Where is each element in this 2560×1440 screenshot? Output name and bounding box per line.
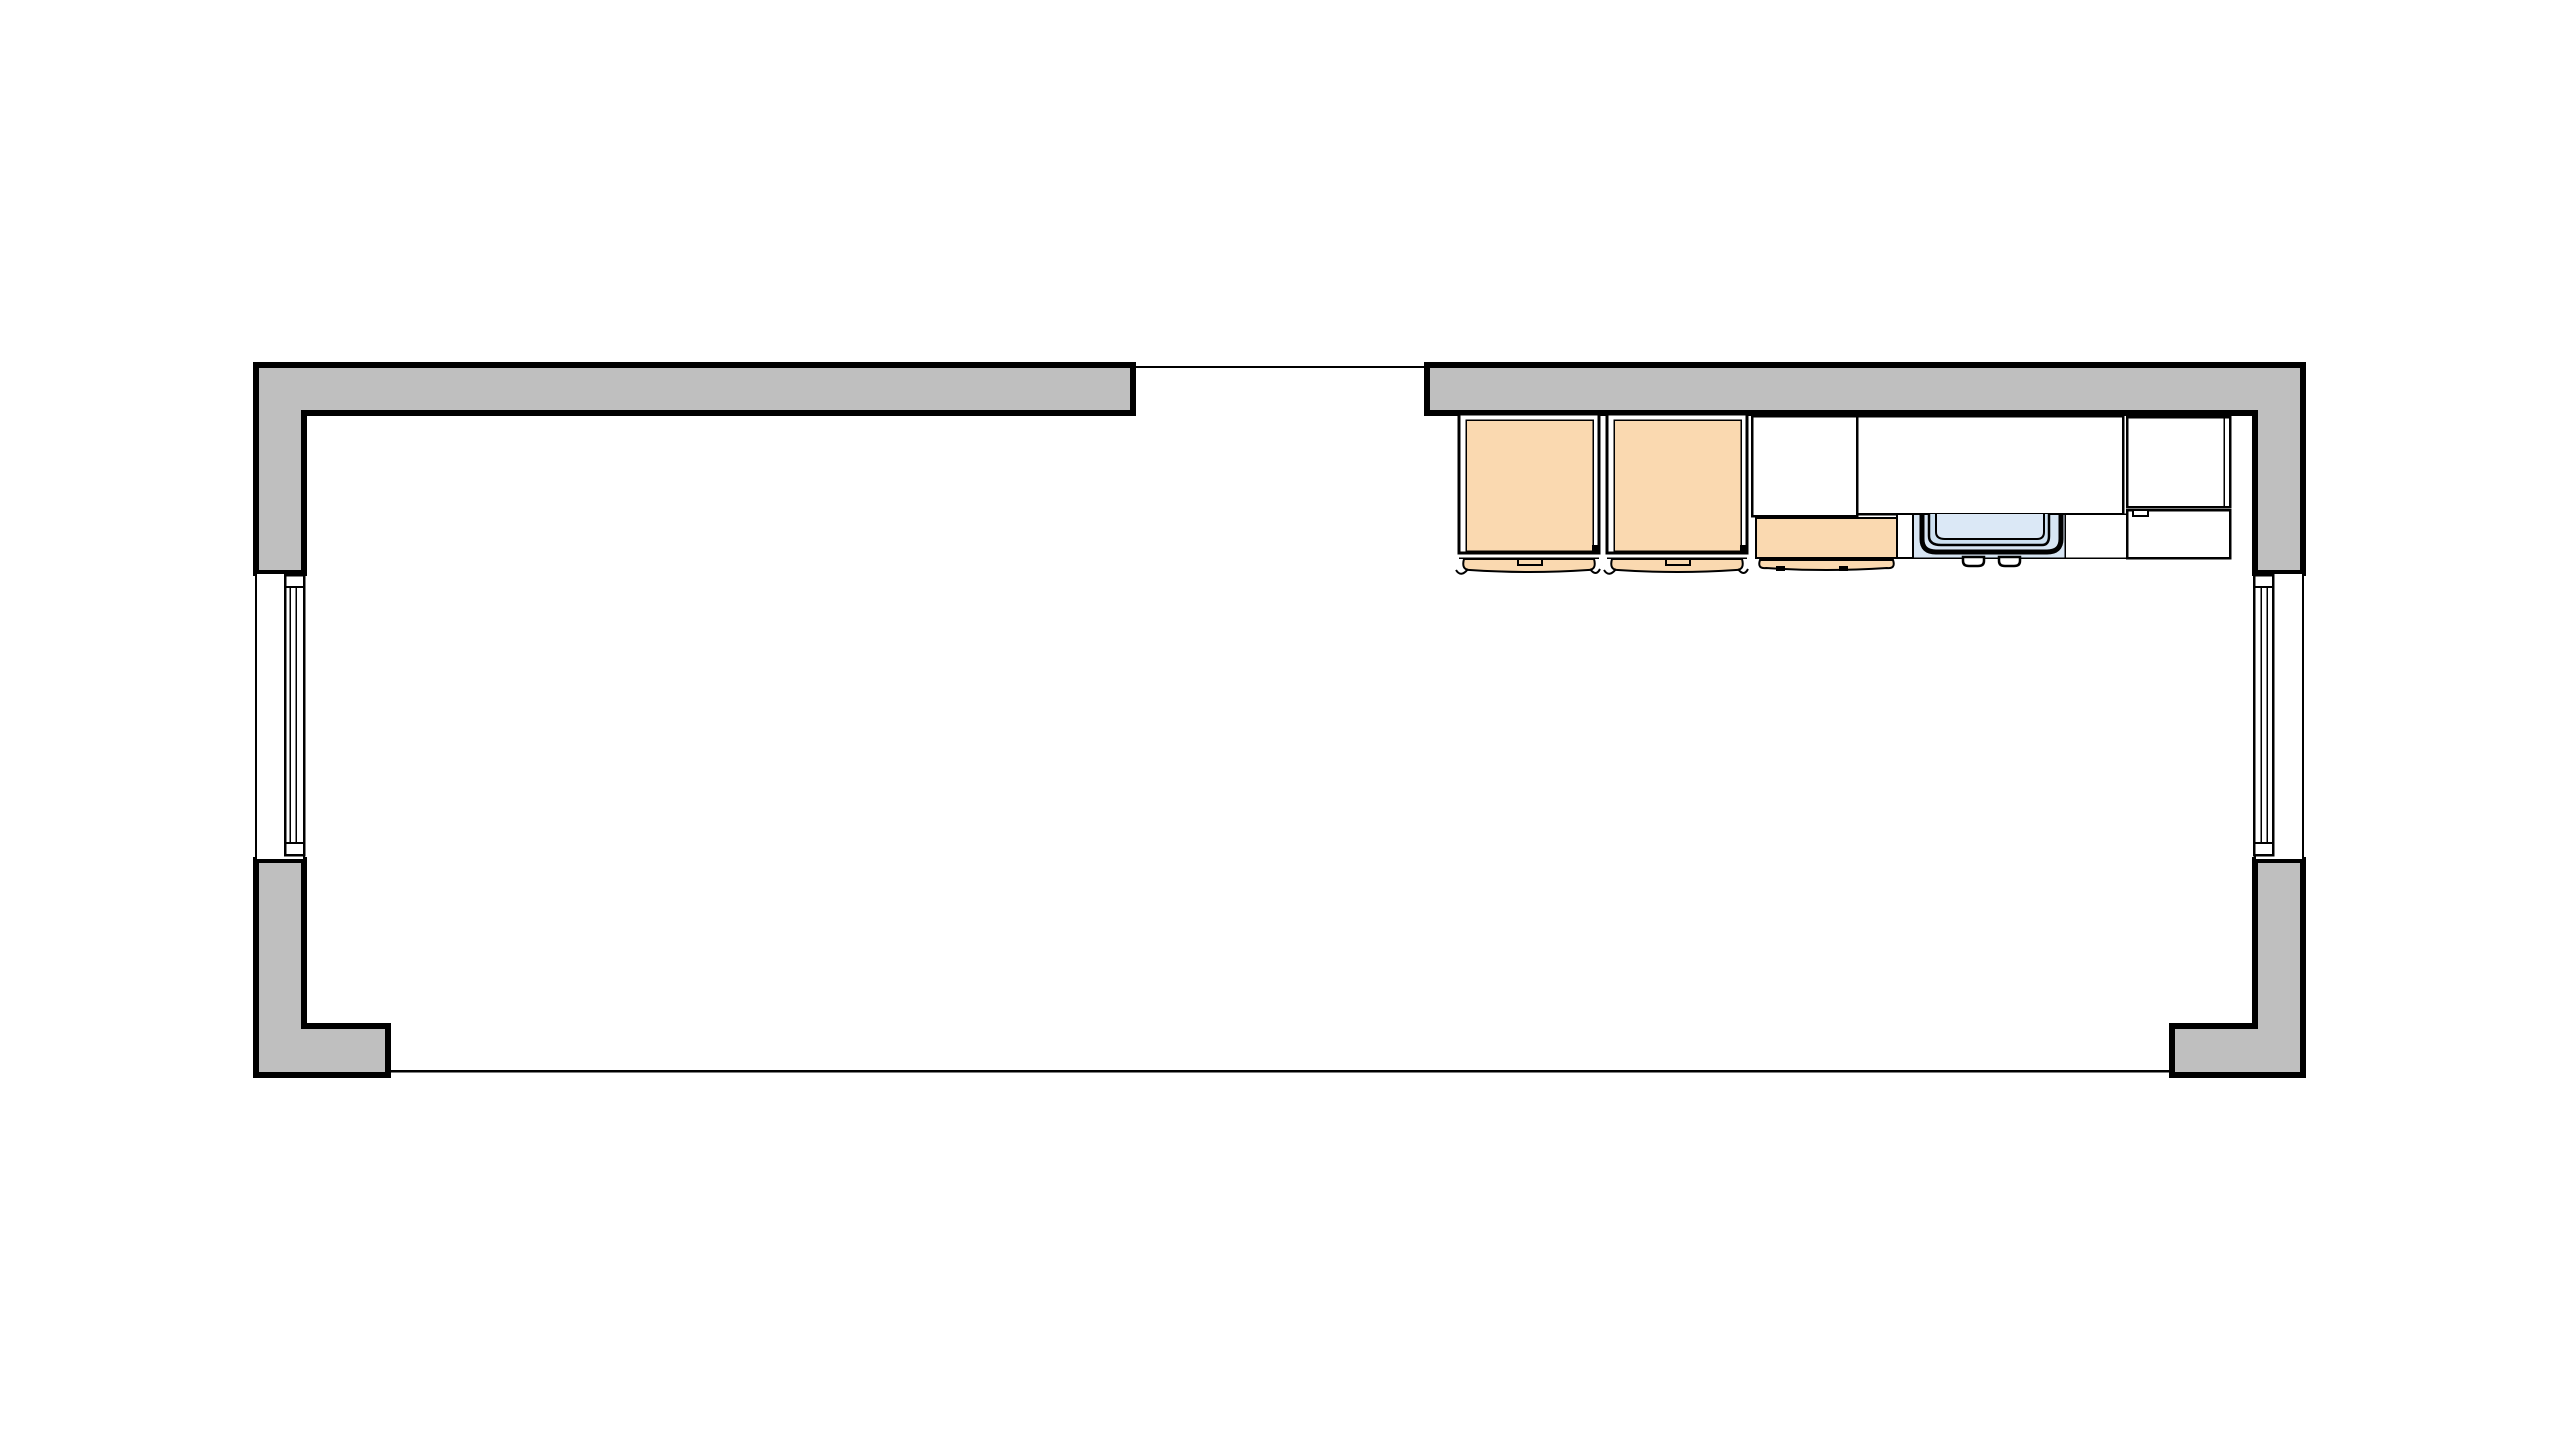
window-right[interactable] [2254, 573, 2303, 860]
window-left-frame [285, 575, 304, 855]
sink-clip-left [1963, 557, 1984, 566]
side-cabinet-lower[interactable] [2127, 510, 2230, 558]
base-cabinet-2[interactable] [1604, 414, 1748, 574]
base-cabinet-1-hinge-mark [1592, 545, 1599, 552]
base-cabinet-front[interactable] [1756, 518, 1897, 571]
window-right-frame [2254, 575, 2273, 855]
base-cabinet-2-top [1614, 420, 1741, 551]
side-cabinet-lower-handle [2133, 510, 2148, 516]
floor-plan-canvas [0, 0, 2560, 1440]
base-cabinet-1[interactable] [1456, 414, 1600, 574]
counter-right-of-sink [2065, 514, 2127, 558]
wall-cabinet-right[interactable] [1857, 416, 2123, 514]
counter-filler-strip [1897, 514, 1913, 558]
base-cabinet-1-handle [1518, 559, 1542, 565]
kitchen-run [1456, 413, 2230, 574]
base-cabinet-1-top [1466, 420, 1593, 551]
base-cabinet-front-nub-1 [1776, 566, 1785, 571]
base-cabinet-2-hinge-mark [1740, 545, 1747, 552]
wall-cabinet-left[interactable] [1752, 416, 1857, 516]
base-cabinet-front-band [1756, 518, 1897, 558]
base-cabinet-front-nub-2 [1839, 566, 1848, 571]
window-left[interactable] [256, 573, 304, 860]
side-cabinet-stack [2127, 417, 2230, 558]
kitchen-sink[interactable] [1913, 514, 2065, 566]
sink-basin [1936, 514, 2044, 539]
floor [0, 0, 2560, 1440]
side-cabinet-upper[interactable] [2127, 417, 2230, 507]
base-cabinet-2-handle [1666, 559, 1690, 565]
sink-clip-right [1999, 557, 2020, 566]
